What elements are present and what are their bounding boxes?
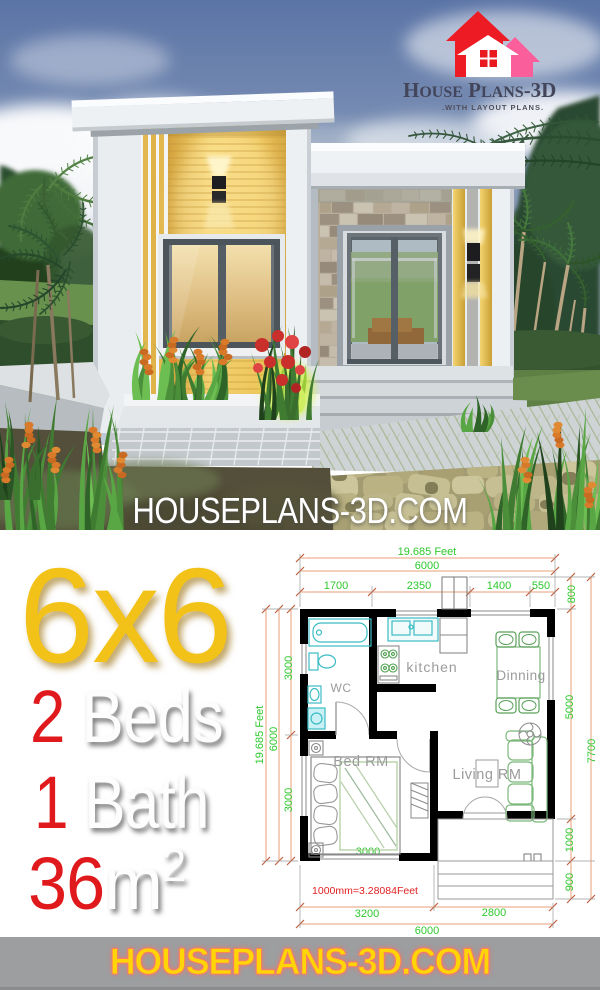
svg-text:19.685 Feet: 19.685 Feet bbox=[254, 706, 266, 765]
svg-text:2800: 2800 bbox=[482, 907, 506, 919]
svg-text:Dinning: Dinning bbox=[496, 668, 545, 683]
svg-text:6000: 6000 bbox=[415, 925, 439, 937]
svg-text:WC: WC bbox=[331, 681, 352, 695]
svg-text:6000: 6000 bbox=[268, 727, 280, 751]
svg-text:800: 800 bbox=[566, 585, 578, 603]
svg-text:550: 550 bbox=[532, 580, 550, 592]
svg-text:2350: 2350 bbox=[407, 580, 431, 592]
svg-text:.WITH LAYOUT PLANS.: .WITH LAYOUT PLANS. bbox=[442, 103, 544, 112]
svg-text:19.685 Feet: 19.685 Feet bbox=[398, 546, 457, 558]
svg-text:900: 900 bbox=[564, 873, 576, 891]
svg-text:3200: 3200 bbox=[355, 908, 379, 920]
svg-text:Bed RM: Bed RM bbox=[333, 754, 388, 770]
svg-text:kitchen: kitchen bbox=[406, 659, 457, 675]
svg-text:3000: 3000 bbox=[356, 846, 380, 858]
svg-text:5000: 5000 bbox=[564, 695, 576, 719]
svg-text:1700: 1700 bbox=[324, 580, 348, 592]
svg-text:Living RM: Living RM bbox=[453, 767, 522, 783]
svg-text:1000mm=3.28084Feet: 1000mm=3.28084Feet bbox=[312, 885, 418, 897]
svg-text:7700: 7700 bbox=[586, 739, 598, 763]
svg-text:6000: 6000 bbox=[415, 560, 439, 572]
svg-text:3000: 3000 bbox=[283, 788, 295, 812]
svg-text:1400: 1400 bbox=[487, 580, 511, 592]
svg-text:3000: 3000 bbox=[283, 656, 295, 680]
svg-text:1000: 1000 bbox=[564, 828, 576, 852]
